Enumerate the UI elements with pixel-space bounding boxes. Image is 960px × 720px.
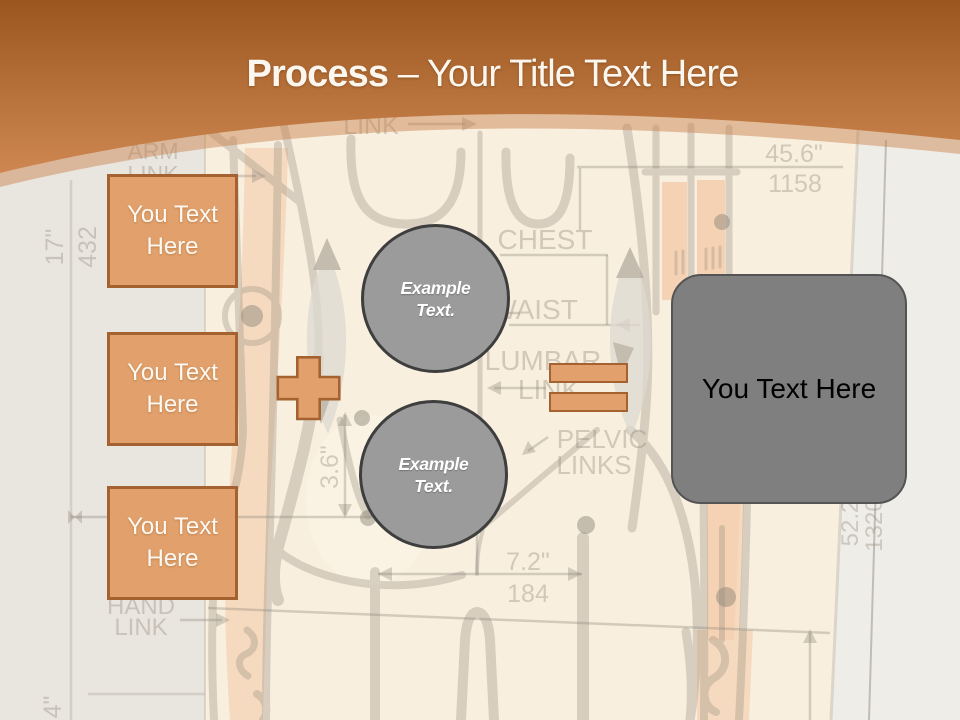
svg-text:1158: 1158 — [768, 170, 822, 198]
svg-text:17": 17" — [41, 229, 69, 266]
svg-text:CHEST: CHEST — [498, 224, 593, 255]
svg-text:1320: 1320 — [861, 498, 888, 551]
svg-text:LINKS: LINKS — [556, 450, 631, 480]
svg-text:184: 184 — [507, 580, 549, 608]
svg-text:4": 4" — [39, 696, 67, 719]
svg-text:LINK: LINK — [114, 614, 167, 641]
svg-text:3.6": 3.6" — [316, 445, 344, 489]
svg-text:52.2: 52.2 — [837, 500, 864, 547]
svg-text:432: 432 — [74, 226, 102, 268]
svg-text:7.2": 7.2" — [506, 548, 550, 576]
svg-text:45.6": 45.6" — [765, 140, 823, 168]
